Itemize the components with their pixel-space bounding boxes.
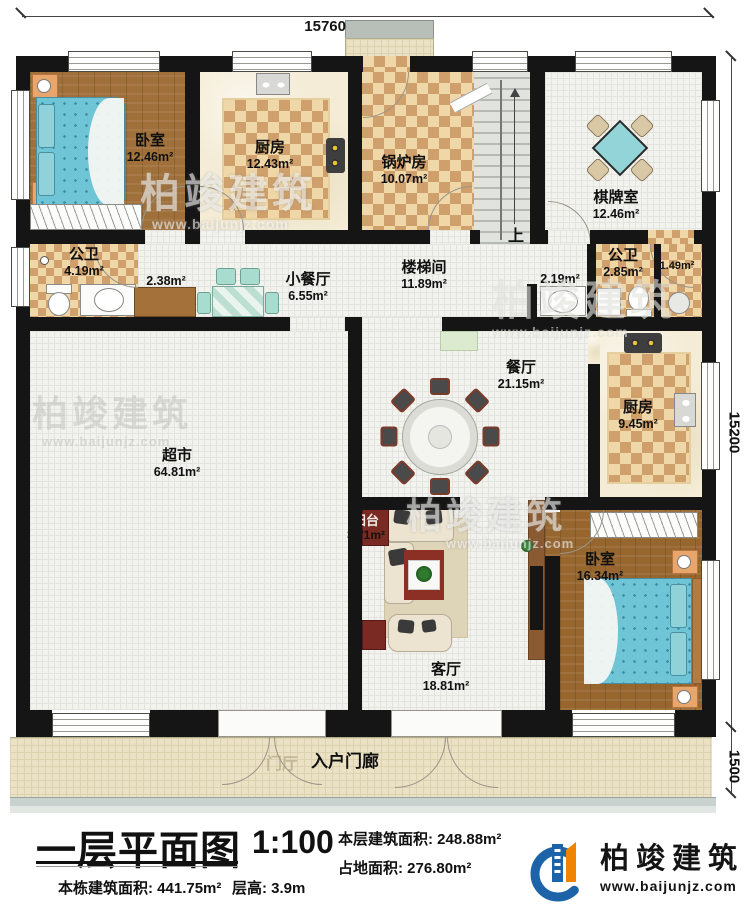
entry-door-frame <box>218 710 326 737</box>
door-threshold <box>145 230 185 244</box>
total-area-text: 本栋建筑面积: 441.75m² <box>58 877 221 898</box>
room-label-kitchen-r: 厨房9.45m² <box>583 400 693 431</box>
window <box>11 247 30 307</box>
floor-market <box>30 331 348 710</box>
window <box>575 51 672 72</box>
cabinet <box>134 287 196 317</box>
wall <box>545 497 716 510</box>
window <box>11 90 30 200</box>
lazy-susan <box>428 425 452 449</box>
pillow <box>38 152 55 196</box>
wall <box>348 72 362 230</box>
plan-scale: 1:100 <box>252 824 334 861</box>
window <box>701 100 720 192</box>
chair <box>430 378 450 395</box>
sink <box>548 290 578 313</box>
opening-threshold <box>290 317 345 331</box>
mat <box>440 331 478 351</box>
chair <box>430 478 450 495</box>
wall <box>702 192 716 362</box>
tv <box>530 566 543 630</box>
window <box>701 560 720 680</box>
chair <box>197 292 211 314</box>
chair <box>216 268 236 285</box>
room-label-entry-porch: 入户门廊 <box>290 752 400 771</box>
room-label-bedroom-tl: 卧室12.46m² <box>95 133 205 164</box>
logo-icon <box>528 836 592 902</box>
wardrobe <box>30 204 142 230</box>
door-threshold <box>588 331 600 364</box>
wall <box>694 230 702 244</box>
stair-rail <box>500 80 502 240</box>
room-label-closet: 2.38m² <box>121 274 211 288</box>
room-label-wc: 1.49m² <box>632 260 722 272</box>
wall <box>702 470 716 560</box>
window <box>572 713 675 737</box>
bath-cabinet <box>597 288 621 316</box>
stove <box>624 333 662 353</box>
pillow <box>38 104 55 148</box>
wardrobe <box>590 512 698 538</box>
window <box>472 51 528 72</box>
back-porch-step <box>345 20 434 40</box>
dimension-tick <box>16 7 27 18</box>
room-label-bedroom-br: 卧室16.34m² <box>545 552 655 583</box>
logo-name: 柏竣建筑 <box>600 845 744 874</box>
side-cabinet <box>362 620 386 650</box>
plant <box>416 566 432 582</box>
wall <box>675 710 716 737</box>
dimension-line-top <box>22 16 714 17</box>
wall <box>590 230 648 244</box>
wall <box>312 56 363 72</box>
wall <box>530 72 545 230</box>
window <box>52 713 150 737</box>
room-label-dining-small: 小餐厅6.55m² <box>253 272 363 303</box>
room-label-stairwell: 楼梯间11.89m² <box>369 260 479 291</box>
floor-area-text: 本层建筑面积: 248.88m² <box>338 828 501 849</box>
toilet <box>48 292 70 316</box>
chair <box>381 427 398 447</box>
toilet-tank <box>626 309 652 317</box>
logo-url: www.baijunjz.com <box>600 878 744 894</box>
pillow <box>421 619 437 633</box>
pillow <box>393 509 411 525</box>
door-threshold <box>200 230 245 244</box>
stair-arrow-head <box>510 88 520 97</box>
wall <box>348 497 460 510</box>
wall <box>30 230 145 244</box>
stairs-up-label: 上 <box>502 228 530 246</box>
pillow <box>670 584 687 628</box>
wall <box>498 710 572 737</box>
pillow <box>397 619 414 634</box>
armchair <box>388 614 452 652</box>
dimension-top-label: 15760 <box>250 18 346 35</box>
opening-threshold <box>362 317 442 331</box>
logo: 柏竣建筑 www.baijunjz.com <box>528 836 744 902</box>
stove <box>326 138 345 173</box>
wall <box>16 710 52 737</box>
wall <box>530 230 548 244</box>
sink <box>94 288 124 312</box>
wall <box>16 200 30 247</box>
window <box>701 362 720 470</box>
wall <box>16 307 30 737</box>
wall <box>160 56 232 72</box>
room-label-chess: 棋牌室12.46m² <box>561 190 671 221</box>
wall <box>410 56 472 72</box>
wall <box>527 284 537 317</box>
door-threshold <box>430 230 472 244</box>
door-threshold <box>545 512 560 556</box>
plan-title: 一层平面图 <box>36 818 241 876</box>
title-underline <box>36 861 238 864</box>
wall <box>528 56 575 72</box>
floor-height-text: 层高: 3.9m <box>232 877 305 898</box>
stair-arrow-line <box>514 96 515 224</box>
floor-plan: 15760 15200 1500 <box>0 0 750 908</box>
dimension-right-label: 15200 <box>726 393 743 473</box>
footprint-area-text: 占地面积: 276.80m² <box>338 857 471 878</box>
kitchen-sink <box>256 73 290 95</box>
window <box>68 51 160 72</box>
wall <box>16 317 290 331</box>
room-label-living: 客厅18.81m² <box>391 662 501 693</box>
wall <box>470 230 480 244</box>
toilet <box>628 286 649 311</box>
wall <box>702 56 716 100</box>
room-label-boiler: 锅炉房10.07m² <box>349 155 459 186</box>
room-label-bath-left: 公卫4.19m² <box>39 247 129 278</box>
lamp-icon <box>677 690 691 704</box>
dimension-porch-label: 1500 <box>726 737 743 797</box>
lamp-icon <box>677 555 691 569</box>
room-label-dining: 餐厅21.15m² <box>466 360 576 391</box>
entry-step-lower <box>10 806 716 813</box>
door-threshold <box>648 230 694 244</box>
washbasin <box>668 292 690 314</box>
lamp-icon <box>37 79 51 93</box>
pillow <box>425 509 442 525</box>
wall <box>150 710 222 737</box>
wall <box>245 230 430 244</box>
wall <box>185 230 200 244</box>
wall <box>16 56 30 90</box>
entry-door-frame <box>391 710 502 737</box>
title-underline-thin <box>36 866 238 867</box>
door-threshold <box>363 56 410 72</box>
wall <box>348 317 362 716</box>
wall <box>442 317 716 331</box>
room-label-kitchen-tl: 厨房12.43m² <box>215 140 325 171</box>
room-label-market: 超市64.81m² <box>122 448 232 479</box>
plant <box>521 540 533 552</box>
chair <box>483 427 500 447</box>
pillow <box>670 632 687 676</box>
window <box>232 51 312 72</box>
